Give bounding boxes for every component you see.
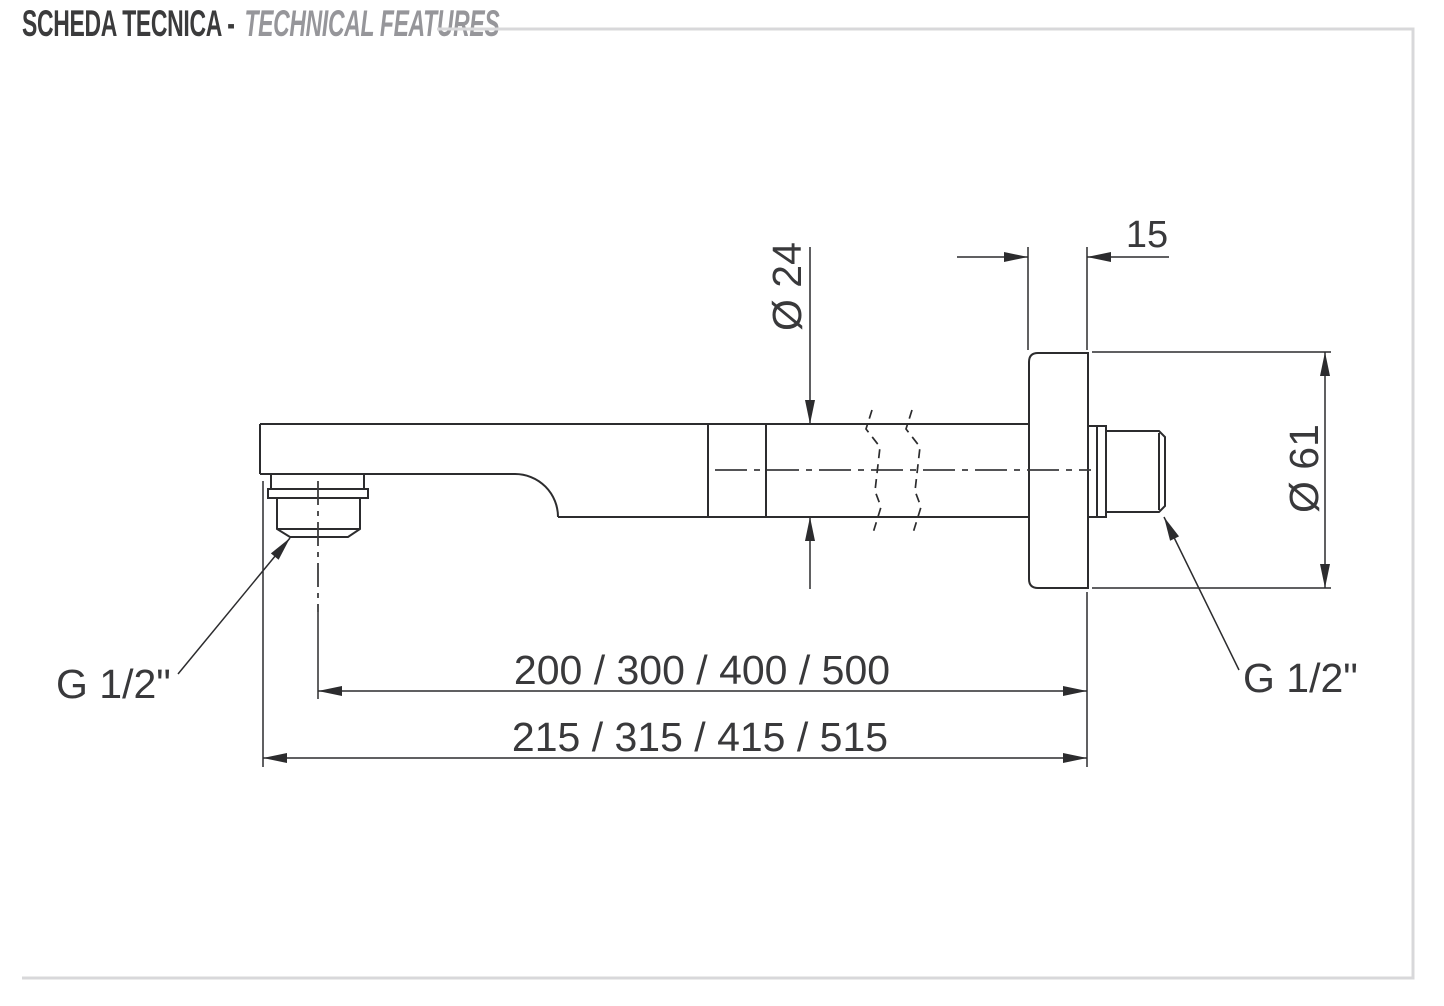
technical-drawing-canvas: 200 / 300 / 400 / 500 215 / 315 / 415 / … [0, 0, 1444, 1006]
arm-underside-fillet [515, 474, 558, 517]
label-plate-thickness: 15 [1126, 214, 1168, 256]
label-arm-diameter: Ø 24 [764, 242, 810, 331]
technical-sheet: SCHEDA TECNICA - TECHNICAL FEATURES [0, 0, 1444, 1006]
label-length-overall: 215 / 315 / 415 / 515 [512, 714, 888, 760]
break-line-right [906, 410, 921, 533]
label-outlet-thread: G 1/2" [56, 661, 171, 707]
label-inlet-thread: G 1/2" [1243, 655, 1358, 701]
label-flange-diameter: Ø 61 [1281, 424, 1327, 513]
label-length-center: 200 / 300 / 400 / 500 [514, 647, 890, 693]
inlet-thread-body [1106, 431, 1165, 512]
break-line-left [866, 410, 881, 533]
page-frame [22, 29, 1413, 978]
leader-outlet-thread [178, 538, 290, 674]
leader-inlet-thread [1164, 517, 1239, 670]
